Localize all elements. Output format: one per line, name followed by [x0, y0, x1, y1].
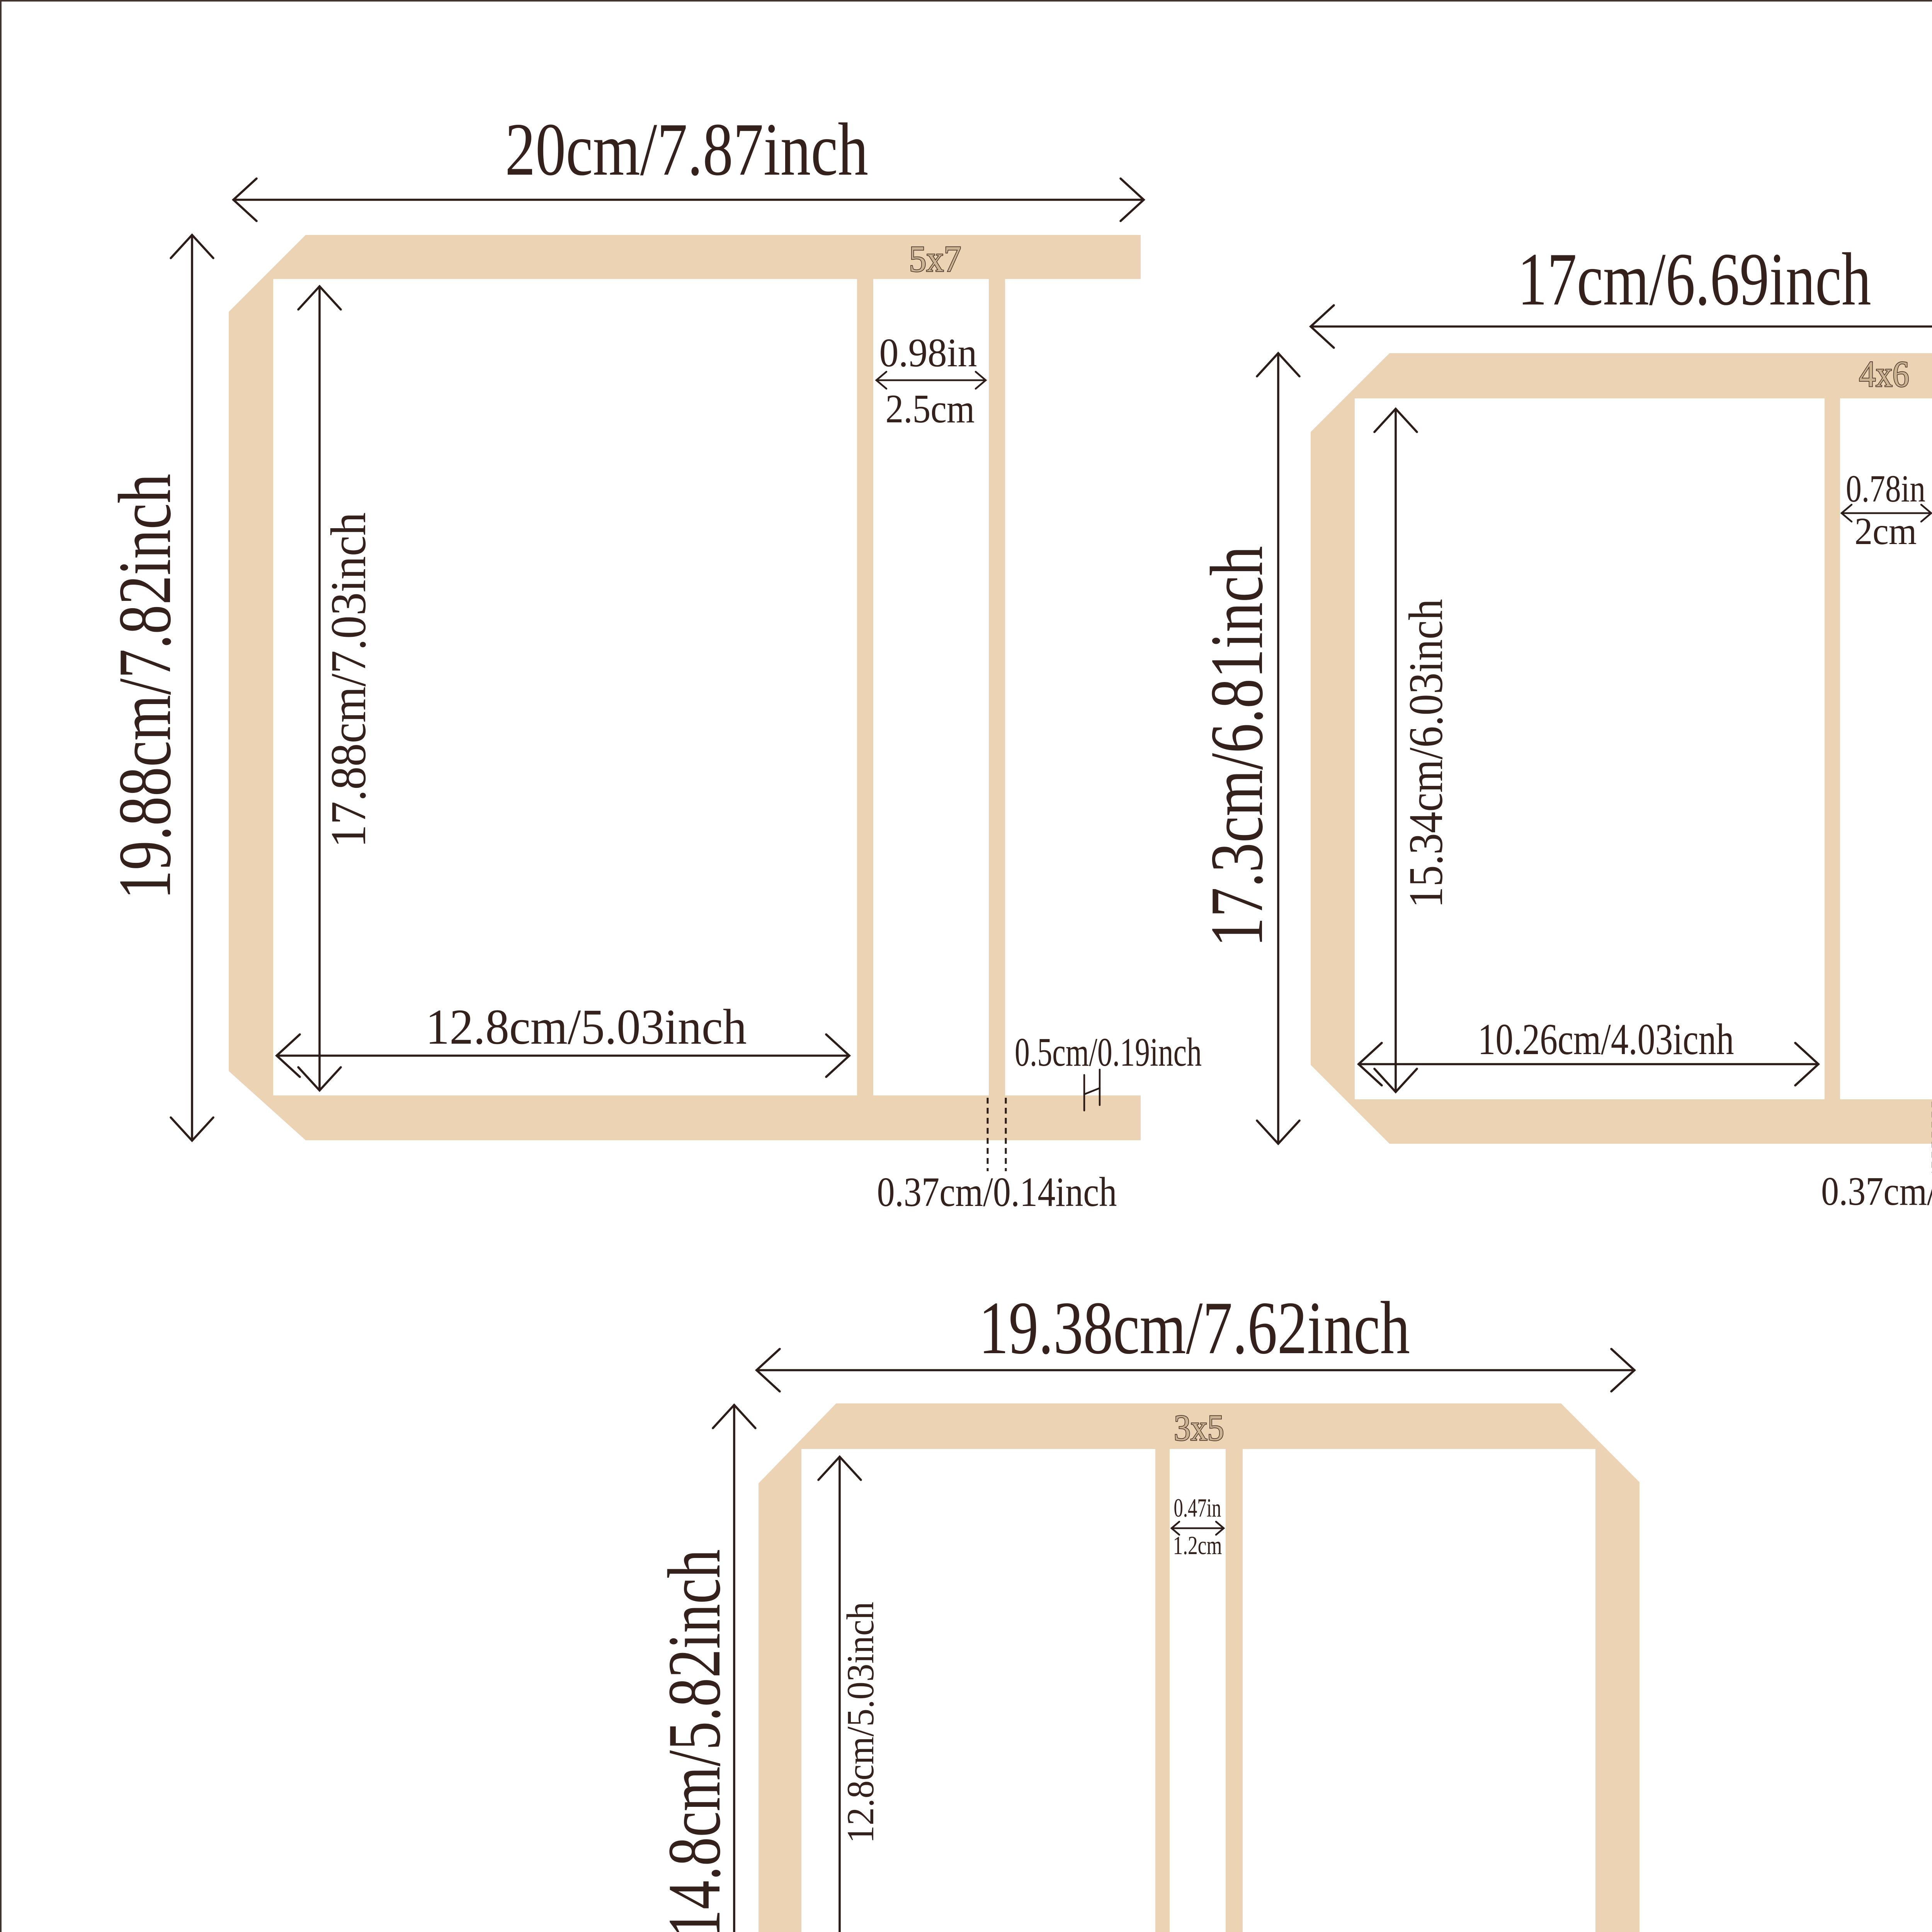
svg-text:0.37cm/0.14inch: 0.37cm/0.14inch — [1821, 1168, 1932, 1214]
svg-text:12.8cm/5.03inch: 12.8cm/5.03inch — [839, 1602, 882, 1844]
svg-text:14.8cm/5.82inch: 14.8cm/5.82inch — [653, 1549, 736, 1932]
svg-text:19.38cm/7.62inch: 19.38cm/7.62inch — [979, 1286, 1410, 1370]
svg-text:19.88cm/7.82inch: 19.88cm/7.82inch — [103, 474, 187, 900]
svg-text:2cm: 2cm — [1855, 510, 1917, 553]
svg-text:5x7: 5x7 — [909, 238, 961, 279]
svg-text:0.78in: 0.78in — [1846, 467, 1925, 510]
svg-text:20cm/7.87inch: 20cm/7.87inch — [505, 108, 868, 191]
svg-text:2.5cm: 2.5cm — [886, 386, 975, 431]
svg-text:12.8cm/5.03inch: 12.8cm/5.03inch — [426, 999, 747, 1055]
svg-text:0.5cm/0.19inch: 0.5cm/0.19inch — [1015, 1029, 1202, 1075]
svg-text:0.98in: 0.98in — [879, 330, 977, 375]
svg-text:1.2cm: 1.2cm — [1173, 1531, 1222, 1560]
svg-text:0.37cm/0.14inch: 0.37cm/0.14inch — [877, 1169, 1117, 1215]
svg-text:15.34cm/6.03inch: 15.34cm/6.03inch — [1400, 599, 1453, 908]
svg-text:17.88cm/7.03inch: 17.88cm/7.03inch — [321, 512, 376, 848]
svg-text:17cm/6.69inch: 17cm/6.69inch — [1518, 238, 1871, 321]
svg-text:17.3cm/6.81inch: 17.3cm/6.81inch — [1195, 546, 1279, 947]
svg-text:4x6: 4x6 — [1859, 354, 1909, 395]
svg-text:10.26cm/4.03icnh: 10.26cm/4.03icnh — [1478, 1015, 1734, 1064]
svg-text:0.47in: 0.47in — [1174, 1493, 1221, 1522]
svg-text:3x5: 3x5 — [1174, 1407, 1224, 1448]
